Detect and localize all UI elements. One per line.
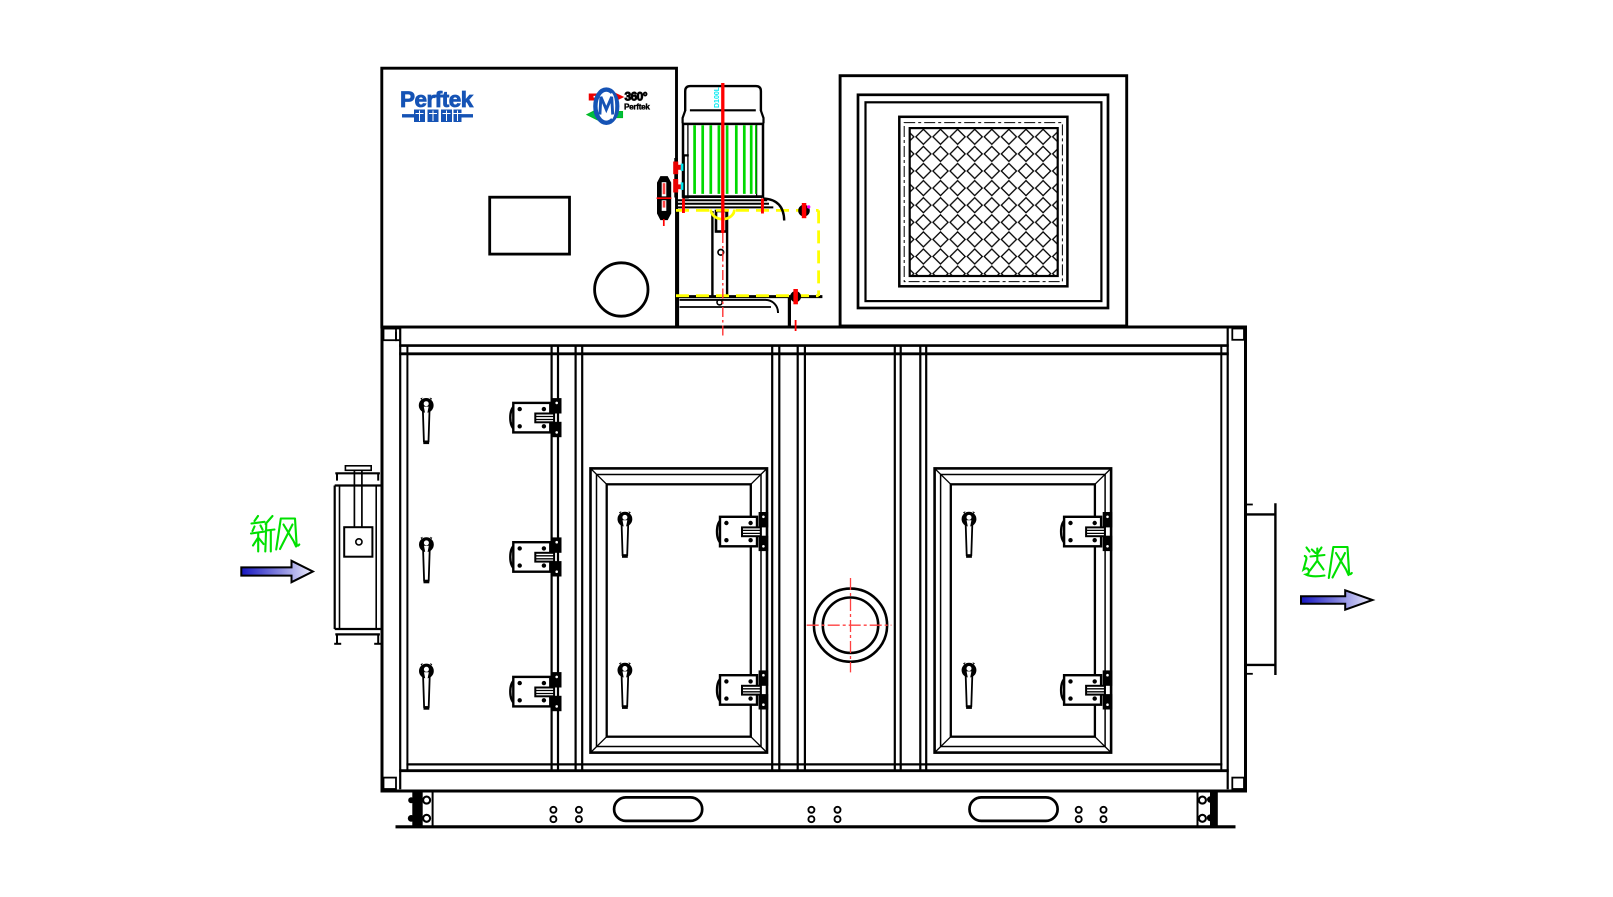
svg-text:Perftek: Perftek [624,103,650,112]
svg-text:D100L: D100L [714,86,721,108]
svg-text:Perftek: Perftek [400,87,474,112]
svg-text:360°: 360° [625,90,648,104]
